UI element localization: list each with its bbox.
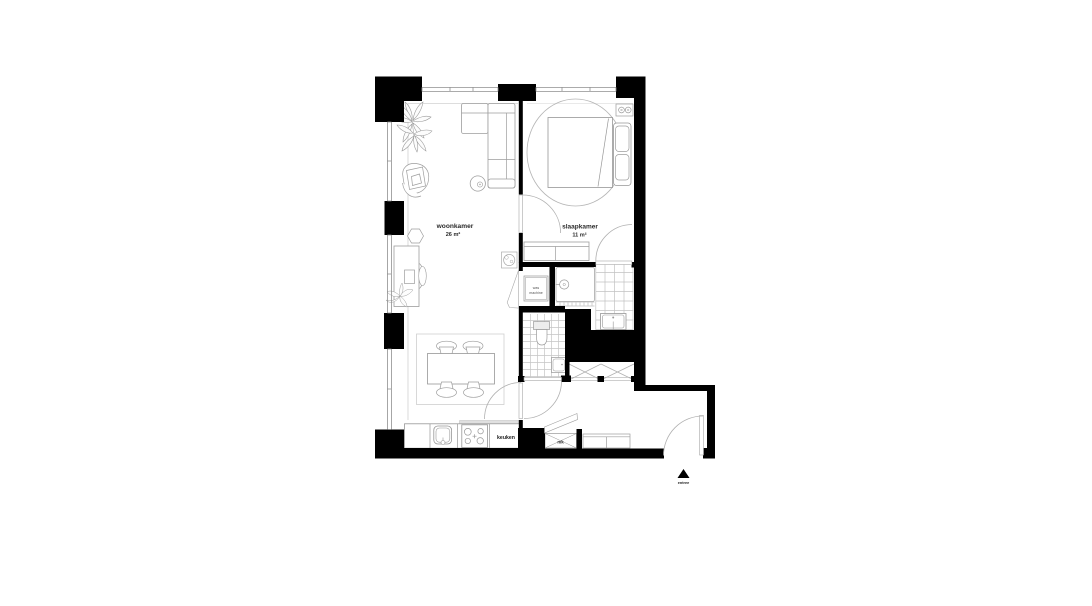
svg-text:machine: machine <box>529 291 543 295</box>
svg-text:mk: mk <box>557 440 564 445</box>
svg-text:keuken: keuken <box>497 435 515 441</box>
svg-text:11 m²: 11 m² <box>572 232 586 239</box>
svg-text:entree: entree <box>678 481 689 485</box>
svg-text:was: was <box>533 286 540 290</box>
svg-text:slaapkamer: slaapkamer <box>562 224 598 231</box>
svg-text:26 m²: 26 m² <box>446 231 461 238</box>
svg-text:woonkamer: woonkamer <box>436 223 474 230</box>
